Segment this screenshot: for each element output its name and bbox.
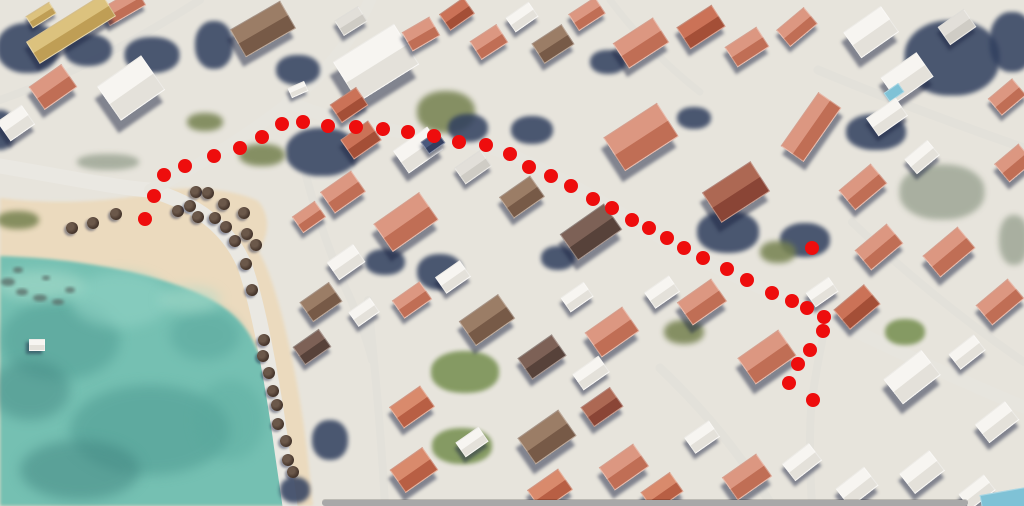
rock [65, 287, 75, 293]
water-patch [170, 310, 240, 360]
satellite-map [0, 0, 1024, 506]
water-patch [70, 273, 170, 328]
water-patch [20, 440, 140, 500]
rock [13, 267, 23, 273]
rock [1, 278, 15, 286]
rock [33, 295, 47, 302]
rock [42, 276, 50, 281]
water-patch [160, 287, 220, 313]
rock [16, 289, 28, 296]
horizontal-scrollbar[interactable] [322, 500, 968, 506]
rock [52, 299, 64, 305]
water-patch [195, 380, 265, 460]
terrain-layer [0, 0, 1024, 506]
